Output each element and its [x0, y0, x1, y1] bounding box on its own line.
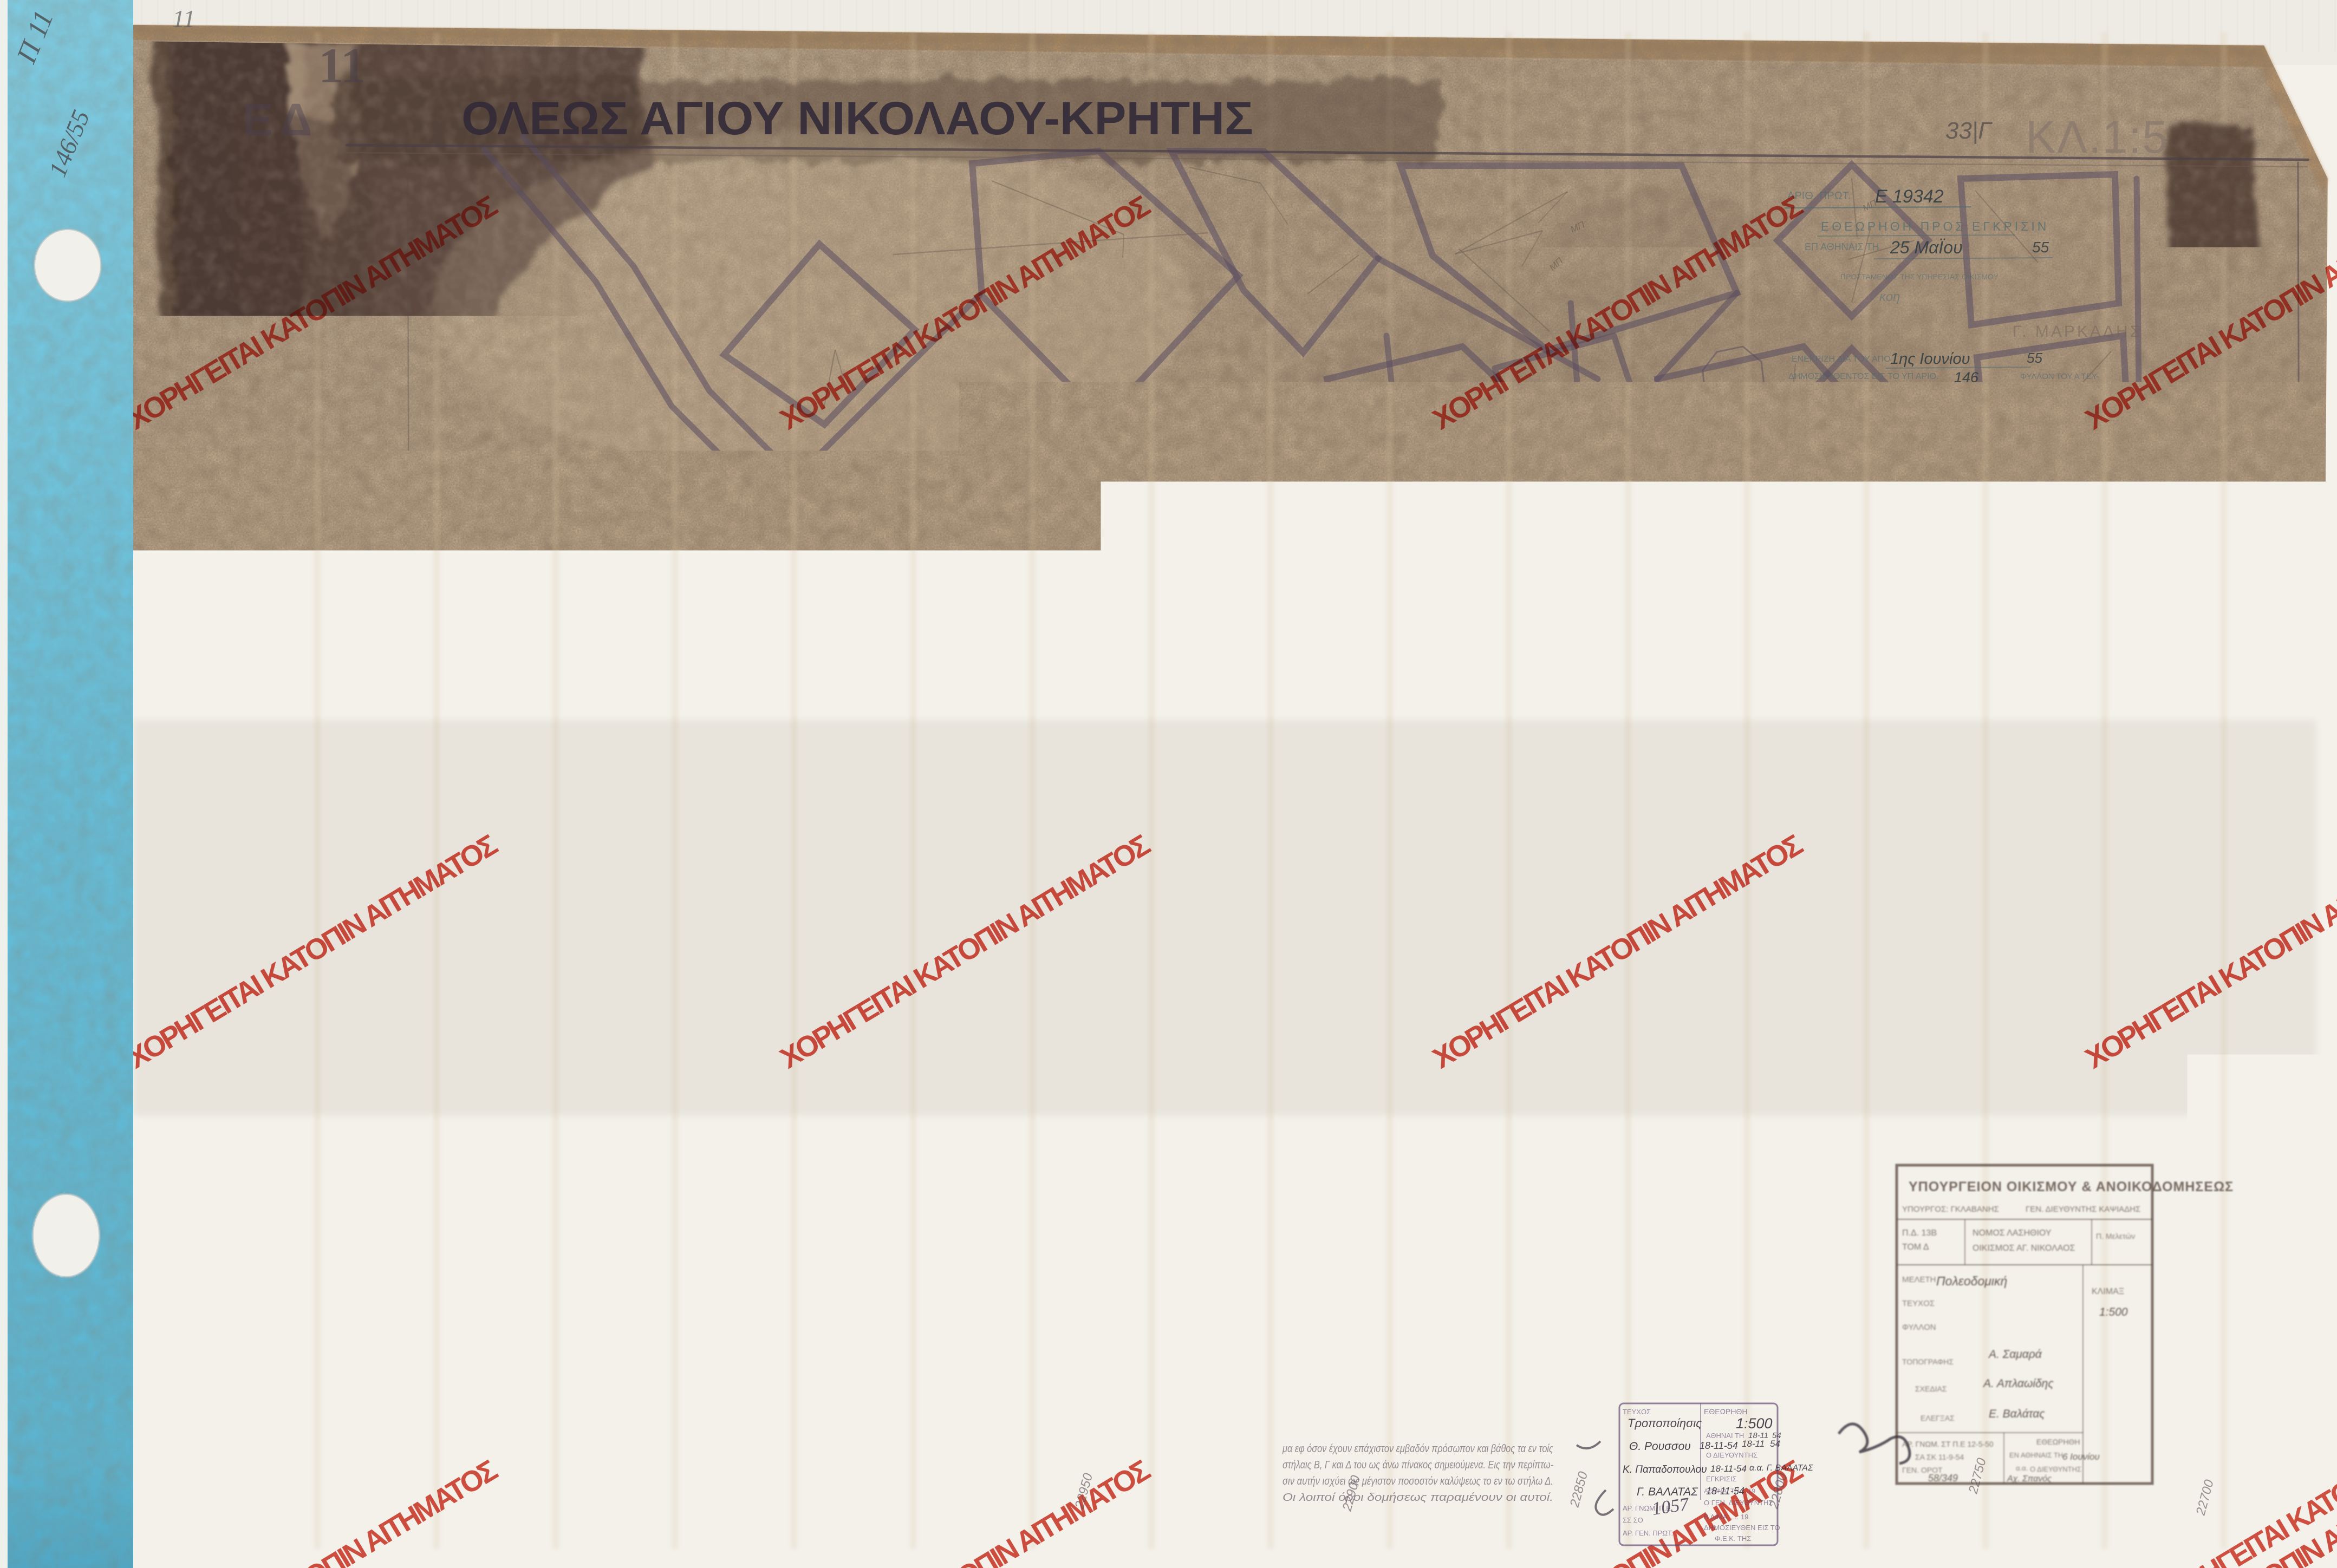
svg-text:ΕΘΕΩΡΗΘΗ ΠΡΟΣ ΕΓΚΡΙΣΙΝ: ΕΘΕΩΡΗΘΗ ΠΡΟΣ ΕΓΚΡΙΣΙΝ [1821, 219, 2049, 233]
svg-text:Δ: Δ [1523, 1253, 1531, 1267]
svg-text:Ελήφθη: Ελήφθη [490, 483, 513, 491]
svg-text:Α: Α [1258, 958, 1326, 1063]
svg-text:εγκρίν. ομοφ. γνωμοδότησις: εγκρίν. ομοφ. γνωμοδότησις [490, 512, 584, 520]
svg-text:Ο ΔΙΕΥΘΥΝΤΗΣ: Ο ΔΙΕΥΘΥΝΤΗΣ [1706, 1451, 1757, 1459]
svg-text:7: 7 [1444, 1309, 1452, 1323]
svg-text:α.α. Γ. ΒΑΛΑΤΑΣ: α.α. Γ. ΒΑΛΑΤΑΣ [1749, 1464, 1814, 1473]
svg-text:α.α.: α.α. [2016, 1464, 2028, 1472]
svg-text:2: 2 [1359, 1309, 1366, 1323]
svg-text:12: 12 [1545, 1330, 1559, 1345]
svg-text:ΕΝΕΚΡΙΖΗ ΔΙΑ ΤΟΥ ΑΠΟ: ΕΝΕΚΡΙΖΗ ΔΙΑ ΤΟΥ ΑΠΟ [1792, 355, 1891, 364]
svg-text:Σ. ΑΝΤΕΝΙΑΔΗΣ: Σ. ΑΝΤΕΝΙΑΔΗΣ [492, 690, 587, 702]
svg-text:ΔΗΜΟΣΙΕΥΘΕΝΤΟΣ ΕΙΣ ΤΟ ΥΠ ΑΡΙΘ.: ΔΗΜΟΣΙΕΥΘΕΝΤΟΣ ΕΙΣ ΤΟ ΥΠ ΑΡΙΘ. [1788, 372, 1938, 381]
svg-text:55: 55 [2032, 239, 2049, 256]
svg-text:ΦΥΛΛΟΝ: ΦΥΛΛΟΝ [1902, 1323, 1936, 1332]
svg-text:11: 11 [172, 5, 196, 32]
svg-text:Ε. Βαλάτας: Ε. Βαλάτας [1989, 1408, 2045, 1420]
svg-text:14: 14 [1467, 1330, 1481, 1345]
svg-text:55: 55 [2027, 350, 2042, 366]
svg-text:ΚΛΙΜΑΞ: ΚΛΙΜΑΞ [2092, 1287, 2124, 1296]
svg-text:146: 146 [1954, 369, 1979, 386]
svg-text:ΧΟΥΣ ΤΗΣ ΕΦΗΜ ΤΗΣ ΚΥΒΕΡΝΗΣΕΩΣ: ΧΟΥΣ ΤΗΣ ΕΦΗΜ ΤΗΣ ΚΥΒΕΡΝΗΣΕΩΣ [1788, 386, 1945, 395]
svg-text:ΑΡ. ΓΝΩΜ. ΣΤ Π.Ε 12-5-50: ΑΡ. ΓΝΩΜ. ΣΤ Π.Ε 12-5-50 [1902, 1440, 1994, 1448]
svg-text:ΔΗΜΟΣΙΕΥΘΕΝ ΕΙΣ ΤΟ: ΔΗΜΟΣΙΕΥΘΕΝ ΕΙΣ ΤΟ [1704, 1524, 1780, 1532]
svg-text:ΣΥΣΤΗΜΑ: ΣΥΣΤΗΜΑ [1355, 1255, 1365, 1298]
svg-text:Τροποποίησις: Τροποποίησις [1628, 1416, 1702, 1430]
svg-text:ΜΕΛΕΤΗ: ΜΕΛΕΤΗ [1902, 1275, 1936, 1284]
svg-text:ΥΠΗΡ. ΟΙΚΙΣΜΟΥ: ΥΠΗΡ. ΟΙΚΙΣΜΟΥ [1668, 1321, 1759, 1332]
svg-text:ΕΘΕΩΡΗΘΗ: ΕΘΕΩΡΗΘΗ [1704, 1407, 1747, 1416]
svg-text:Ο ΔΙΕΥΘΥΝΤΗΣ: Ο ΔΙΕΥΘΥΝΤΗΣ [2030, 1465, 2081, 1473]
svg-text:ΤΗΣ: ΤΗΣ [1852, 405, 1871, 416]
svg-text:ΔΙΕΥΘΥΝΣΙΣ Ε²: ΔΙΕΥΘΥΝΣΙΣ Ε² [1665, 1342, 1743, 1354]
svg-text:Α. Απλαωίδης: Α. Απλαωίδης [1982, 1377, 2054, 1390]
svg-text:ΤΟΜ.: ΤΟΜ. [1620, 1371, 1642, 1380]
svg-text:ΕΘΕΩΡΗΘΗ: ΕΘΕΩΡΗΘΗ [2036, 1438, 2080, 1446]
svg-text:ΥΠΟΥΡΓΕΙΟΝ ΔΗΜ. ΕΡΓΩΝ: ΥΠΟΥΡΓΕΙΟΝ ΔΗΜ. ΕΡΓΩΝ [1637, 1305, 1794, 1317]
svg-text:E 19342: E 19342 [1875, 186, 1944, 207]
svg-text:40: 40 [1506, 1309, 1520, 1323]
svg-text:ΤΕΥΧΟΣ: ΤΕΥΧΟΣ [1623, 1408, 1651, 1416]
svg-text:ΕΠ ΑΘΗΝΑΙΣ ΤΗ: ΕΠ ΑΘΗΝΑΙΣ ΤΗ [1805, 241, 1879, 252]
svg-text:4: 4 [1526, 1309, 1533, 1323]
svg-text:ΥΠΟΥΡΓΟΣ: ΓΚΛΑΒΑΝΗΣ: ΥΠΟΥΡΓΟΣ: ΓΚΛΑΒΑΝΗΣ [1902, 1205, 1999, 1214]
svg-text:Ο ΓΕΝ. ΔΙΕΥΘΥΝΤΗΣ: Ο ΓΕΝ. ΔΙΕΥΘΥΝΤΗΣ [1704, 1499, 1773, 1507]
svg-text:150: 150 [1506, 1330, 1528, 1345]
svg-text:Γ. ΜΑΡΚΑΔΗΣ: Γ. ΜΑΡΚΑΔΗΣ [2013, 323, 2142, 341]
svg-text:58/349: 58/349 [1928, 1473, 1958, 1484]
svg-text:1:500: 1:500 [2099, 1306, 2128, 1318]
svg-text:ΚΛ.1:5: ΚΛ.1:5 [2026, 112, 2169, 162]
svg-text:ΑΓ. ΝΙΚΟΛΑΟΣ: ΑΓ. ΝΙΚΟΛΑΟΣ [1678, 1370, 1752, 1382]
svg-text:ΑΘΗΝΑΙ ΤΗ ....19: ΑΘΗΝΑΙ ΤΗ ....19 [1704, 1487, 1755, 1495]
svg-text:671¹: 671¹ [525, 527, 545, 538]
svg-text:ΜΕΛΕΤΗ: ΜΕΛΕΤΗ [1620, 1388, 1655, 1397]
svg-text:ΣΣ ΣΟ: ΣΣ ΣΟ [1623, 1516, 1643, 1524]
svg-text:ΤΟΠΟΓΡΑΦΗΣ: ΤΟΠΟΓΡΑΦΗΣ [1902, 1357, 1954, 1366]
svg-text:8.5: 8.5 [1379, 1309, 1397, 1323]
svg-text:ΟΙΚΟΔΟΜΙΚΩΝ: ΟΙΚΟΔΟΜΙΚΩΝ [1317, 1233, 1327, 1298]
svg-text:6: 6 [1545, 1309, 1552, 1323]
svg-text:200: 200 [1421, 1330, 1443, 1345]
svg-text:Α: Α [1277, 1309, 1287, 1323]
svg-text:Ο Πρόεδρος: Ο Πρόεδρος [489, 546, 546, 557]
svg-text:55: 55 [2027, 402, 2042, 418]
svg-text:10: 10 [1467, 1309, 1481, 1323]
svg-text:Π.Δ.: Π.Δ. [1620, 1358, 1637, 1368]
svg-text:Πολεοδομική: Πολεοδομική [1936, 1274, 2007, 1288]
svg-text:ΤΟΜΕΥΣ: ΤΟΜΕΥΣ [1277, 1260, 1287, 1298]
svg-text:ΛΑΣΗΘΙΟΥ: ΛΑΣΗΘΙΟΥ [1683, 1355, 1740, 1367]
svg-text:Φ.Ε.Κ. ΤΗΣ: Φ.Ε.Κ. ΤΗΣ [1715, 1534, 1751, 1543]
svg-text:18-11-54: 18-11-54 [1700, 1440, 1738, 1451]
svg-text:18-11: 18-11 [1748, 1431, 1768, 1440]
svg-text:ΤΟΜ Δ: ΤΟΜ Δ [1902, 1243, 1929, 1252]
svg-text:2: 2 [1359, 1330, 1366, 1345]
svg-text:ΝΟΜΟΣ ΛΑΣΗΘΙΟΥ: ΝΟΜΟΣ ΛΑΣΗΘΙΟΥ [1973, 1229, 2052, 1238]
svg-text:μα εφ όσον έχουν επάχιστον εμβ: μα εφ όσον έχουν επάχιστον εμβαδόν πρόσω… [1282, 1443, 1553, 1455]
svg-text:Ο Γραμματεύς: Ο Γραμματεύς [536, 628, 608, 641]
svg-text:Β: Β [1278, 1330, 1287, 1345]
svg-text:ΕΛΑΧΙΣΤΑ: ΕΛΑΧΙΣΤΑ [1442, 1255, 1481, 1264]
svg-text:8: 8 [1444, 1330, 1451, 1345]
svg-text:Οι λοιποί όροι δομήσεως παραμέ: Οι λοιποί όροι δομήσεως παραμένουν οι αυ… [1283, 1492, 1553, 1504]
svg-text:100: 100 [1421, 1309, 1443, 1323]
svg-text:Οικόπεδα υφιστάμενα κατά την η: Οικόπεδα υφιστάμενα κατά την ημέραν της … [1294, 1394, 1549, 1406]
svg-text:25 ΜαΪου: 25 ΜαΪου [1890, 238, 1963, 257]
svg-text:8 Ιουνίου: 8 Ιουνίου [1884, 403, 1947, 421]
svg-text:Πράξ.: Πράξ. [490, 527, 507, 534]
svg-text:33|Γ: 33|Γ [1945, 117, 1993, 144]
svg-text:Κ. ΑΠΟΣΤΟΛΟΠΟΥΛΟΣ: Κ. ΑΠΟΣΤΟΛΟΠΟΥΛΟΣ [597, 610, 724, 622]
svg-text:ΣΧΕΔΙΑΣ: ΣΧΕΔΙΑΣ [1915, 1384, 1947, 1393]
svg-text:ΑΘΗΝΑΙ ΤΗ: ΑΘΗΝΑΙ ΤΗ [1706, 1432, 1744, 1440]
svg-text:Κ. Παπαδοπουλου: Κ. Παπαδοπουλου [1623, 1464, 1707, 1475]
svg-text:Συνεζητ.: Συνεζητ. [490, 498, 515, 505]
svg-text:11: 11 [318, 38, 366, 93]
svg-text:ΔΗΜΟΣ ΑΓ. ΝΙΚΟΛΑΟΥ: ΔΗΜΟΣ ΑΓ. ΝΙΚΟΛΑΟΥ [490, 468, 565, 476]
svg-text:ΠΡΟΣΤΑΜΕΝΟΣ ΤΗΣ ΥΠΗΡΕΣΙΑΣ ΟΙΚΙ: ΠΡΟΣΤΑΜΕΝΟΣ ΤΗΣ ΥΠΗΡΕΣΙΑΣ ΟΙΚΙΣΜΟΥ [1840, 272, 1999, 281]
svg-text:ΟΡΟΙ ΔΟΜΗΣΕΩΣ: ΟΡΟΙ ΔΟΜΗΣΕΩΣ [1280, 1219, 1459, 1237]
svg-text:ΓΕΝ. ΔΙΕΥΘΥΝΤΗΣ ΚΑΨΙΑΔΗΣ: ΓΕΝ. ΔΙΕΥΘΥΝΤΗΣ ΚΑΨΙΑΔΗΣ [2026, 1205, 2140, 1214]
svg-text:6 Ιουνίου: 6 Ιουνίου [2062, 1452, 2100, 1462]
svg-text:Θ. Ρουσσου: Θ. Ρουσσου [1629, 1440, 1691, 1453]
svg-text:Αχ. Σπανός: Αχ. Σπανός [2007, 1474, 2052, 1484]
svg-text:Γ: Γ [1503, 1253, 1510, 1267]
svg-text:15-11-54: 15-11-54 [530, 480, 576, 493]
svg-text:Α. Σαμαρά: Α. Σαμαρά [1988, 1348, 2042, 1361]
svg-text:Β: Β [1484, 1253, 1492, 1267]
svg-text:ΕΝ ΑΘΗΝΑΙΣ ΤΗ: ΕΝ ΑΘΗΝΑΙΣ ΤΗ [2009, 1451, 2063, 1459]
svg-text:18-11-54: 18-11-54 [1710, 1464, 1747, 1474]
svg-text:ΕΛΕΓΞΑΣ: ΕΛΕΓΞΑΣ [1921, 1414, 1955, 1422]
svg-text:ΕΔ: ΕΔ [243, 94, 318, 145]
svg-text:σιν αυτήν ισχύει ως μέγιστον π: σιν αυτήν ισχύει ως μέγιστον ποσοστόν κα… [1283, 1475, 1553, 1487]
svg-text:ΕΓΚΡΙΣΙΣ: ΕΓΚΡΙΣΙΣ [1706, 1475, 1736, 1483]
svg-text:Γ. ΒΑΛΑΤΑΣ: Γ. ΒΑΛΑΤΑΣ [1637, 1486, 1698, 1498]
svg-text:ή προερχόμενα εκ ρυμοτομίας ή: ή προερχόμενα εκ ρυμοτομίας ή συμπτύξεως… [1283, 1410, 1553, 1422]
svg-text:8: 8 [1526, 1330, 1534, 1345]
svg-text:Β Δ/ΜΑ ..... 19: Β Δ/ΜΑ ..... 19 [1704, 1513, 1748, 1521]
svg-text:ΒΑΘΟΣ: ΒΑΘΟΣ [1519, 1272, 1528, 1301]
svg-text:αυθημερόν: αυθημερόν [530, 496, 582, 508]
svg-text:ΟΛΕΩΣ ΑΓΙΟΥ ΝΙΚΟΛΑΟΥ-ΚΡΗΤΗΣ: ΟΛΕΩΣ ΑΓΙΟΥ ΝΙΚΟΛΑΟΥ-ΚΡΗΤΗΣ [461, 93, 1253, 145]
svg-text:ΤΕΥΧΟΣ: ΤΕΥΧΟΣ [1902, 1299, 1935, 1308]
svg-text:ΣΑ ΣΚ 11-9-54: ΣΑ ΣΚ 11-9-54 [1915, 1453, 1964, 1461]
svg-text:ΦΥΛΛΟΝ ΤΟΥ Α ΤΕΥ-: ΦΥΛΛΟΝ ΤΟΥ Α ΤΕΥ- [2020, 372, 2099, 381]
svg-text:1ης Ιουνίου: 1ης Ιουνίου [1890, 350, 1970, 368]
svg-text:54: 54 [1772, 1431, 1781, 1440]
svg-text:κοη: κοη [1879, 290, 1900, 304]
svg-text:ΥΠΟΥΡΓΕΙΟΝ ΟΙΚΙΣΜΟΥ & ΑΝΟΙΚΟΔΟ: ΥΠΟΥΡΓΕΙΟΝ ΟΙΚΙΣΜΟΥ & ΑΝΟΙΚΟΔΟΜΗΣΕΩΣ [1909, 1179, 2234, 1194]
svg-text:Π.Δ. 13Β: Π.Δ. 13Β [1902, 1229, 1937, 1238]
svg-text:1:500: 1:500 [1736, 1415, 1773, 1432]
svg-text:8.5: 8.5 [1379, 1330, 1397, 1345]
svg-text:Ο διοικητής: Ο διοικητής [594, 544, 646, 555]
svg-text:ΟΙΚΙΣΜΟΣ ΑΓ. ΝΙΚΟΛΑΟΣ: ΟΙΚΙΣΜΟΣ ΑΓ. ΝΙΚΟΛΑΟΣ [1973, 1244, 2075, 1253]
svg-text:Γ. ΜΑΡΚΑΚΗΣ: Γ. ΜΑΡΚΑΚΗΣ [477, 611, 563, 623]
svg-text:ΑΡ. ΓΕΝ. ΠΡΩΤ.: ΑΡ. ΓΕΝ. ΠΡΩΤ. [1623, 1529, 1673, 1537]
svg-text:στήλαις Β, Γ και Δ του ως άνω: στήλαις Β, Γ και Δ του ως άνω πίνακος ση… [1283, 1459, 1553, 1471]
svg-text:Π. Μελετών: Π. Μελετών [2096, 1232, 2135, 1240]
svg-text:Α: Α [1464, 1253, 1473, 1267]
svg-text:κατά την ημέραν της εγκρίσεως: κατά την ημέραν της εγκρίσεως του σχεδίο… [1283, 1427, 1553, 1439]
svg-text:Ε²/3: Ε²/3 [1754, 1358, 1775, 1370]
